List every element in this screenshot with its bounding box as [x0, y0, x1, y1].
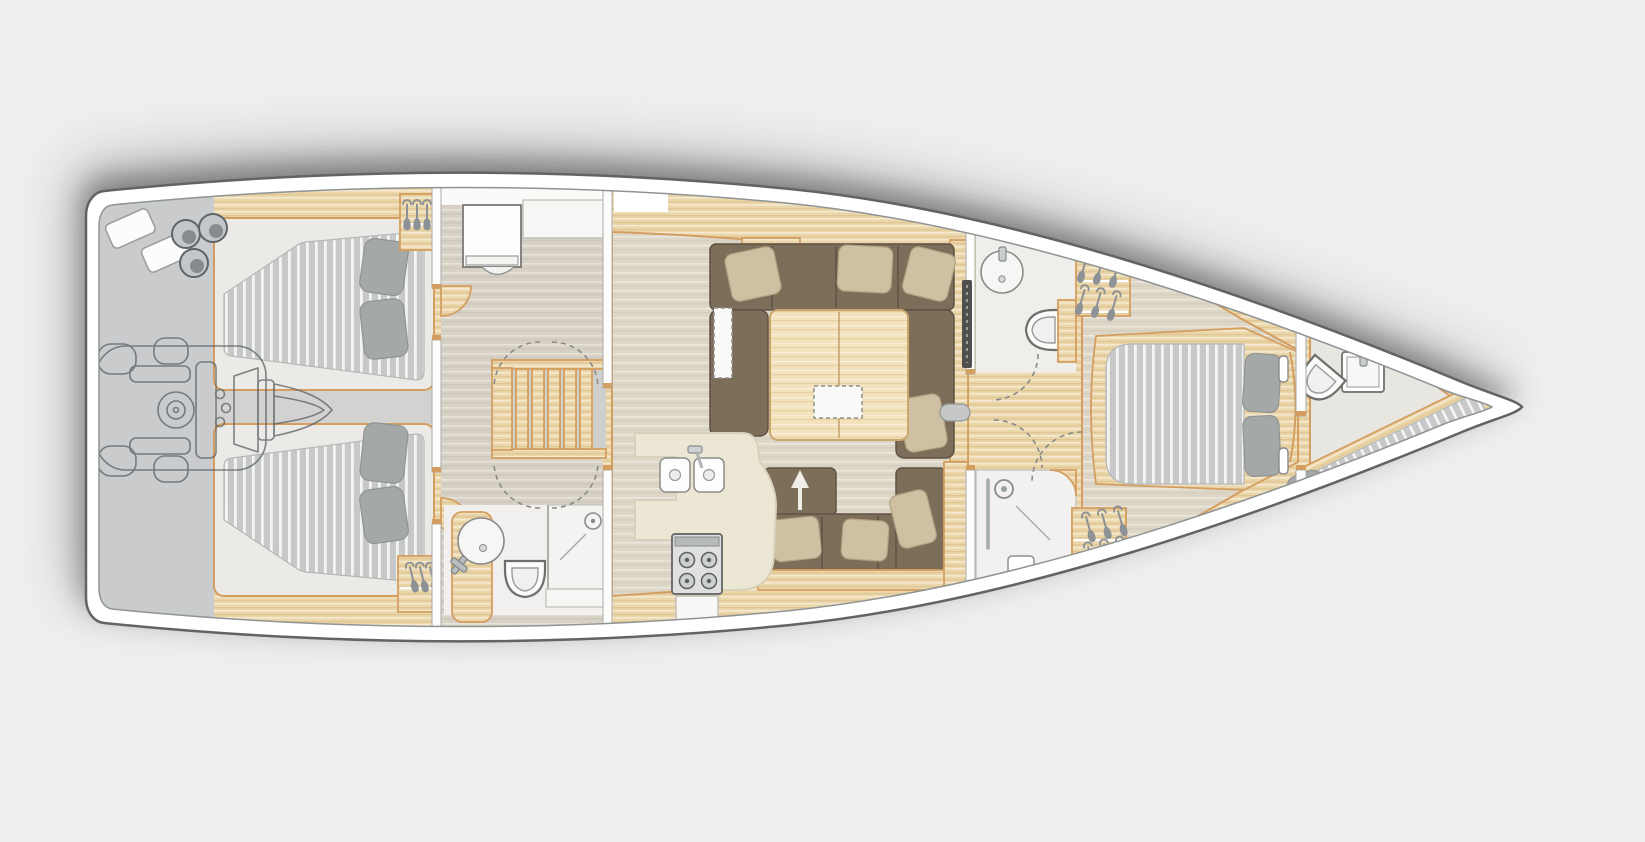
reading-light — [1279, 448, 1288, 474]
pillow — [841, 518, 890, 561]
toilet-icon — [1026, 310, 1062, 350]
step-pouf — [940, 404, 970, 421]
stair-tread — [516, 369, 528, 449]
faucet-icon — [999, 247, 1006, 261]
pillow — [1242, 353, 1282, 413]
pillow — [770, 516, 822, 563]
stair-tread — [564, 369, 576, 449]
pillow — [358, 485, 409, 545]
engine-compartment-strip — [214, 390, 442, 424]
shower-stall — [548, 505, 606, 589]
floor-plan-canvas — [0, 0, 1645, 842]
pillow — [359, 298, 409, 360]
owner-double-bed — [1106, 344, 1244, 484]
nav-desk — [463, 205, 521, 275]
locker — [546, 589, 606, 607]
pillow — [837, 245, 893, 294]
wet-locker — [523, 200, 605, 238]
mid-section — [441, 178, 606, 632]
pillow — [724, 245, 783, 302]
table-extension — [814, 386, 862, 418]
pillow — [1242, 415, 1281, 477]
shelf — [1058, 300, 1076, 362]
aft-cabin-port — [214, 194, 452, 390]
stair-tread — [548, 369, 560, 449]
reading-light — [1279, 356, 1288, 382]
toilet-icon — [505, 561, 545, 597]
galley-locker — [676, 596, 718, 620]
stove-4-burner-icon — [672, 534, 722, 594]
stair-tread — [532, 369, 544, 449]
pillow — [359, 422, 409, 484]
companionway-stairs — [492, 360, 606, 458]
yacht-deck-plan — [0, 0, 1645, 842]
side-cabinet — [944, 462, 968, 590]
sofa-base — [758, 570, 954, 590]
aft-head — [444, 505, 606, 622]
salon — [612, 186, 970, 620]
optional-seat-extension — [714, 308, 732, 378]
stair-tread — [580, 369, 592, 449]
